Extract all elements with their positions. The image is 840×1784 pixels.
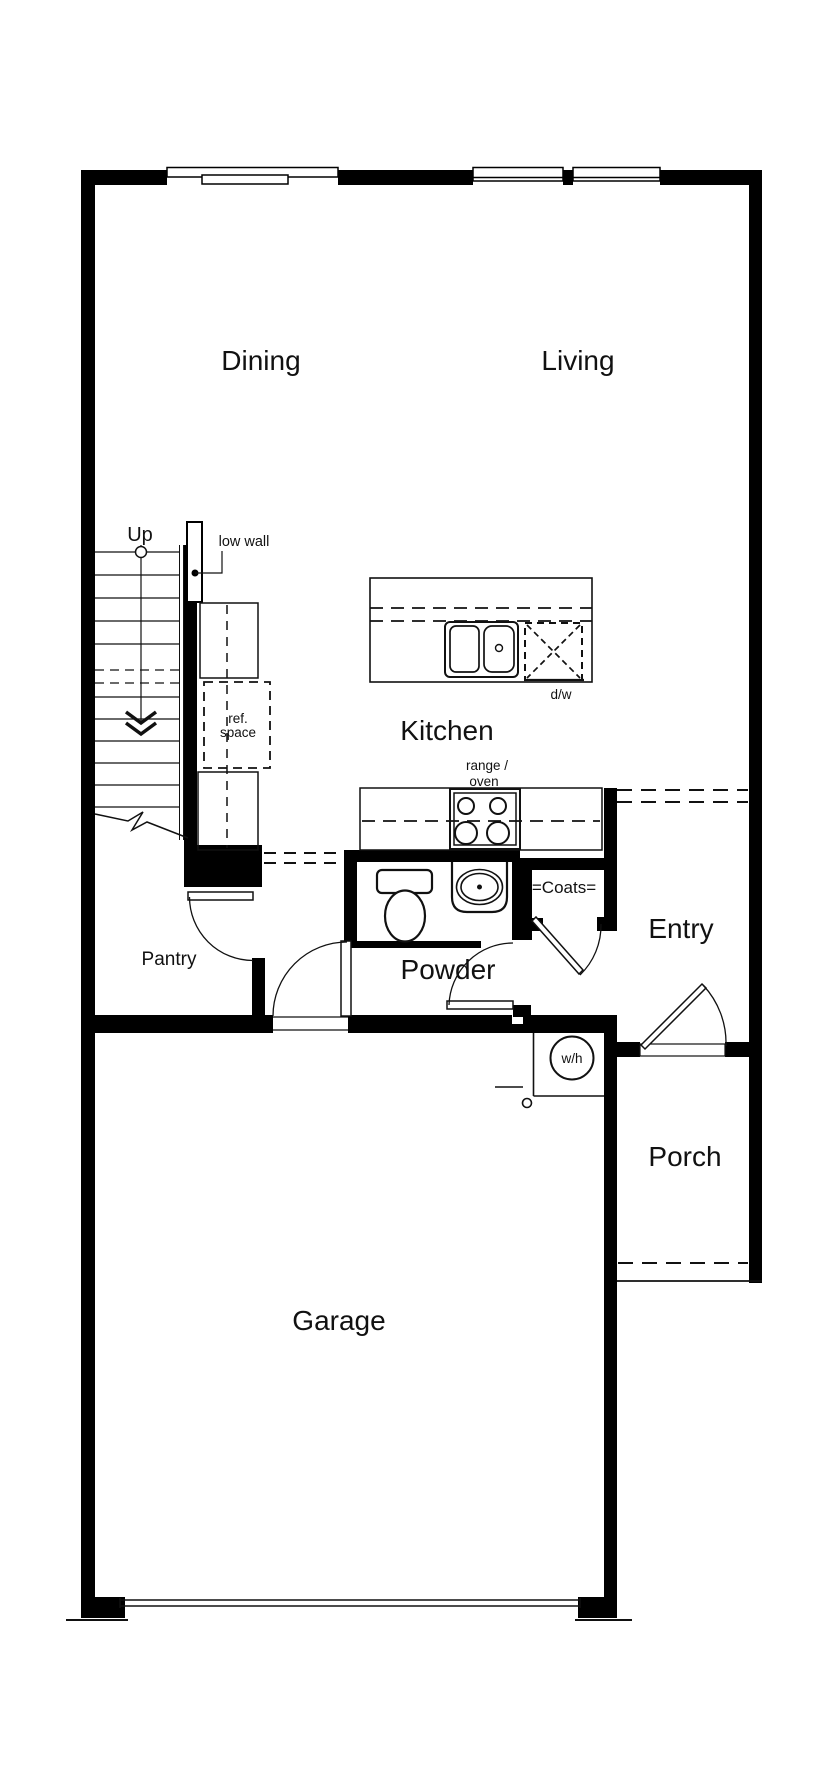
stair-break-line xyxy=(95,812,188,838)
annotation-low-wall: low wall xyxy=(219,534,270,550)
stair-start-circle xyxy=(136,547,147,558)
drain-dot xyxy=(478,885,482,889)
window-living-2 xyxy=(573,168,660,182)
cabinet-lower xyxy=(198,772,258,850)
room-label-dining: Dining xyxy=(221,345,300,376)
pantry-door xyxy=(188,892,253,961)
bathroom-sink xyxy=(452,862,507,912)
annotation-coats: =Coats= xyxy=(532,878,596,897)
stair-treads xyxy=(95,552,179,807)
annotation-range-line2: oven xyxy=(469,774,498,789)
annotation-ref-line1: ref. xyxy=(228,711,248,726)
annotation-ref-line2: space xyxy=(220,725,256,740)
floor-plan-drawing: Dining Living Kitchen Pantry Powder Entr… xyxy=(0,0,840,1784)
staircase xyxy=(95,545,188,840)
room-label-porch: Porch xyxy=(648,1141,721,1172)
room-label-kitchen: Kitchen xyxy=(400,715,493,746)
sliding-window-dining xyxy=(167,168,338,185)
annotation-up: Up xyxy=(127,524,153,546)
stair-stringer xyxy=(180,545,184,840)
burner xyxy=(487,822,509,844)
garage-door xyxy=(66,1598,632,1620)
burner xyxy=(455,822,477,844)
floor-plan-canvas: Dining Living Kitchen Pantry Powder Entr… xyxy=(0,0,840,1784)
stair-direction-line xyxy=(126,545,156,734)
kitchen-island xyxy=(370,578,592,682)
room-label-powder: Powder xyxy=(401,954,496,985)
room-label-garage: Garage xyxy=(292,1305,385,1336)
annotation-dishwasher: d/w xyxy=(550,687,571,702)
garage-entry-door xyxy=(273,941,351,1030)
annotation-range-line1: range / xyxy=(466,758,508,773)
toilet xyxy=(377,870,432,942)
annotation-water-heater: w/h xyxy=(560,1051,582,1066)
floor-drain-circle xyxy=(523,1099,532,1108)
room-label-pantry: Pantry xyxy=(142,949,197,970)
kitchen-counter xyxy=(360,788,602,850)
dishwasher xyxy=(524,623,584,680)
powder-fixtures xyxy=(377,862,507,942)
coats-closet-door xyxy=(532,917,601,975)
kitchen-sink xyxy=(445,622,518,677)
burner xyxy=(490,798,506,814)
water-heater-closet xyxy=(495,1033,604,1108)
burner xyxy=(458,798,474,814)
room-label-entry: Entry xyxy=(648,913,713,944)
room-label-living: Living xyxy=(541,345,614,376)
cabinet-upper xyxy=(200,603,258,678)
window-living-1 xyxy=(473,168,563,182)
front-entry-door xyxy=(640,984,726,1056)
sink-drain xyxy=(496,645,503,652)
low-wall xyxy=(187,522,222,602)
range-oven xyxy=(450,789,520,849)
